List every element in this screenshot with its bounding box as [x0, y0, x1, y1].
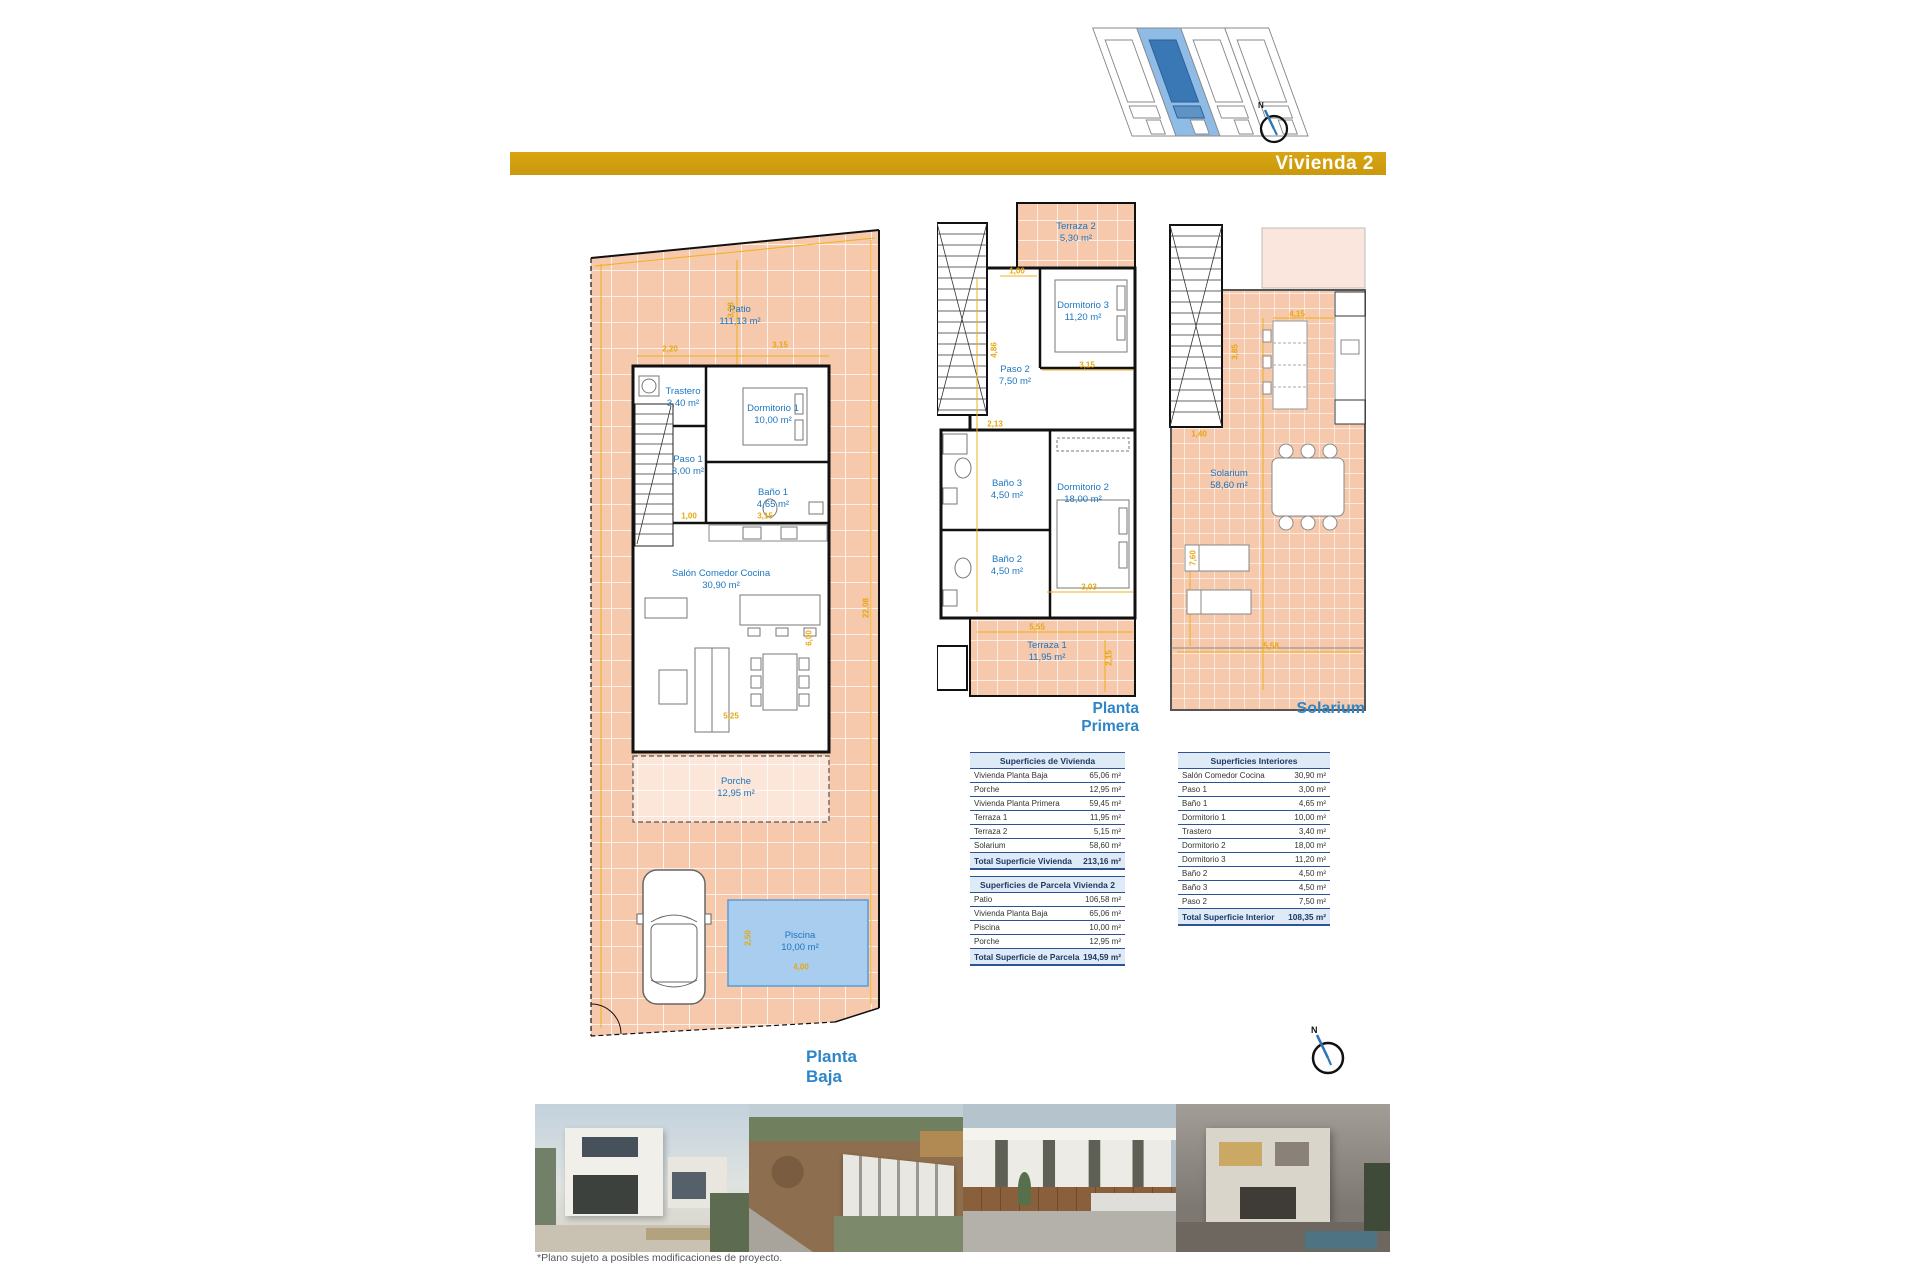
- row-label: Porche: [974, 937, 999, 946]
- compass-bottom-icon: N: [1300, 1022, 1362, 1084]
- room-label-dormitorio-3: Dormitorio 311,20 m²: [1057, 300, 1109, 324]
- dim-label: 2,15: [1105, 650, 1114, 666]
- row-label: Paso 2: [1182, 897, 1207, 906]
- row-label: Trastero: [1182, 827, 1212, 836]
- table-row: Terraza 111,95 m²: [970, 811, 1125, 825]
- row-value: 4,65 m²: [1299, 799, 1326, 808]
- page-title: Vivienda 2: [1275, 153, 1386, 175]
- table-header: Superficies de Parcela Vivienda 2: [970, 876, 1125, 893]
- row-label: Paso 1: [1182, 785, 1207, 794]
- row-label: Terraza 1: [974, 813, 1007, 822]
- render-photos-strip: [535, 1104, 1390, 1252]
- total-value: 213,16 m²: [1083, 856, 1121, 866]
- plan-planta-baja: Patio111,13 m² Trastero3,40 m² Dormitori…: [585, 218, 885, 1070]
- room-label-bano-3: Baño 34,50 m²: [991, 478, 1023, 502]
- row-value: 10,00 m²: [1294, 813, 1326, 822]
- dim-label: 3,03: [1081, 583, 1097, 592]
- table-row: Dormitorio 311,20 m²: [1178, 853, 1330, 867]
- plan-title-planta-baja: Planta Baja: [806, 1047, 885, 1087]
- row-value: 3,00 m²: [1299, 785, 1326, 794]
- room-label-bano-1: Baño 14,65 m²: [757, 487, 789, 511]
- row-value: 11,20 m²: [1295, 855, 1326, 864]
- page: N Vivienda 2: [0, 0, 1920, 1280]
- table-row: Terraza 25,15 m²: [970, 825, 1125, 839]
- table-row: Trastero3,40 m²: [1178, 825, 1330, 839]
- table-row: Salón Comedor Cocina30,90 m²: [1178, 769, 1330, 783]
- total-label: Total Superficie Vivienda: [974, 856, 1072, 866]
- table-row: Baño 14,65 m²: [1178, 797, 1330, 811]
- row-label: Baño 3: [1182, 883, 1207, 892]
- table-header: Superficies de Vivienda: [970, 752, 1125, 769]
- table-row: Porche12,95 m²: [970, 783, 1125, 797]
- table-total-row: Total Superficie de Parcela194,59 m²: [970, 949, 1125, 966]
- table-row: Solarium58,60 m²: [970, 839, 1125, 853]
- dim-label: 1,00: [1009, 267, 1025, 276]
- row-value: 106,58 m²: [1085, 895, 1121, 904]
- dim-label: 5,25: [723, 712, 739, 721]
- row-label: Vivienda Planta Primera: [974, 799, 1060, 808]
- dim-label: 3,15: [1079, 361, 1095, 370]
- plan-title-planta-primera: Planta Primera: [1039, 700, 1139, 736]
- dim-label: 5,58: [1263, 642, 1279, 651]
- table-row: Dormitorio 110,00 m²: [1178, 811, 1330, 825]
- render-photo-villa-pool: [535, 1104, 749, 1252]
- row-value: 7,50 m²: [1299, 897, 1326, 906]
- dim-label: 4,86: [990, 342, 999, 358]
- dim-label: 6,00: [805, 630, 814, 646]
- room-label-terraza-1: Terraza 111,95 m²: [1027, 640, 1067, 664]
- north-label: N: [1258, 101, 1264, 110]
- table-superficies-interiores: Superficies InterioresSalón Comedor Coci…: [1178, 752, 1330, 926]
- render-photo-aerial: [749, 1104, 963, 1252]
- dim-label: 1,00: [681, 512, 697, 521]
- row-value: 65,06 m²: [1089, 909, 1121, 918]
- table-superficies-vivienda: Superficies de ViviendaVivienda Planta B…: [970, 752, 1125, 870]
- room-label-trastero: Trastero3,40 m²: [665, 386, 700, 410]
- row-value: 12,95 m²: [1089, 785, 1121, 794]
- table-row: Vivienda Planta Baja65,06 m²: [970, 769, 1125, 783]
- room-label-paso-1: Paso 13,00 m²: [672, 454, 704, 478]
- row-label: Patio: [974, 895, 992, 904]
- room-label-piscina: Piscina10,00 m²: [781, 930, 819, 954]
- table-header: Superficies Interiores: [1178, 752, 1330, 769]
- north-label: N: [1311, 1025, 1318, 1035]
- row-value: 59,45 m²: [1089, 799, 1121, 808]
- row-label: Solarium: [974, 841, 1006, 850]
- dim-label: 22,08: [862, 598, 871, 618]
- table-superficies-parcela: Superficies de Parcela Vivienda 2Patio10…: [970, 876, 1125, 966]
- title-bar: Vivienda 2: [510, 152, 1386, 175]
- row-value: 18,00 m²: [1294, 841, 1326, 850]
- table-row: Vivienda Planta Baja65,06 m²: [970, 907, 1125, 921]
- dim-label: 3,28: [727, 302, 736, 318]
- row-value: 11,95 m²: [1090, 813, 1121, 822]
- plan-planta-primera: Terraza 25,30 m² Dormitorio 311,20 m² Pa…: [937, 200, 1142, 720]
- total-value: 194,59 m²: [1083, 952, 1121, 962]
- table-row: Baño 34,50 m²: [1178, 881, 1330, 895]
- row-label: Salón Comedor Cocina: [1182, 771, 1265, 780]
- room-label-solarium: Solarium58,60 m²: [1210, 468, 1248, 492]
- room-label-paso-2: Paso 27,50 m²: [999, 364, 1031, 388]
- row-label: Piscina: [974, 923, 1000, 932]
- row-label: Dormitorio 1: [1182, 813, 1226, 822]
- footnote: *Plano sujeto a posibles modificaciones …: [537, 1252, 782, 1264]
- dim-label: 3,15: [772, 341, 788, 350]
- row-label: Vivienda Planta Baja: [974, 771, 1048, 780]
- total-value: 108,35 m²: [1288, 912, 1326, 922]
- row-value: 3,40 m²: [1299, 827, 1326, 836]
- plan-title-solarium: Solarium: [1295, 700, 1365, 718]
- row-label: Dormitorio 2: [1182, 841, 1226, 850]
- room-label-bano-2: Baño 24,50 m²: [991, 554, 1023, 578]
- row-value: 12,95 m²: [1089, 937, 1121, 946]
- dim-label: 2,13: [987, 420, 1003, 429]
- row-value: 58,60 m²: [1089, 841, 1121, 850]
- room-label-dormitorio-1: Dormitorio 110,00 m²: [747, 403, 799, 427]
- row-value: 65,06 m²: [1089, 771, 1121, 780]
- row-value: 30,90 m²: [1294, 771, 1326, 780]
- dim-label: 4,00: [793, 963, 809, 972]
- total-label: Total Superficie Interior: [1182, 912, 1275, 922]
- table-total-row: Total Superficie Vivienda213,16 m²: [970, 853, 1125, 870]
- plan-solarium: Solarium58,60 m² 1,40 4,15 3,85 7,60 5,5…: [1169, 218, 1369, 718]
- table-row: Vivienda Planta Primera59,45 m²: [970, 797, 1125, 811]
- total-label: Total Superficie de Parcela: [974, 952, 1079, 962]
- row-value: 10,00 m²: [1089, 923, 1121, 932]
- render-photo-street-row: [963, 1104, 1177, 1252]
- dim-label: 4,15: [1289, 310, 1305, 319]
- row-label: Vivienda Planta Baja: [974, 909, 1048, 918]
- dim-label: 1,40: [1191, 430, 1207, 439]
- dim-label: 3,85: [1231, 344, 1240, 360]
- row-value: 4,50 m²: [1299, 883, 1326, 892]
- dim-label: 2,50: [744, 930, 753, 946]
- table-row: Paso 13,00 m²: [1178, 783, 1330, 797]
- table-row: Baño 24,50 m²: [1178, 867, 1330, 881]
- row-label: Baño 1: [1182, 799, 1207, 808]
- dim-label: 7,60: [1189, 550, 1198, 566]
- planta-baja-drawing: [585, 218, 885, 1070]
- dim-label: 2,20: [662, 345, 678, 354]
- table-row: Piscina10,00 m²: [970, 921, 1125, 935]
- row-label: Dormitorio 3: [1182, 855, 1226, 864]
- compass-top-icon: N: [1248, 96, 1304, 152]
- room-label-terraza-2: Terraza 25,30 m²: [1056, 221, 1096, 245]
- table-row: Porche12,95 m²: [970, 935, 1125, 949]
- room-label-salon: Salón Comedor Cocina30,90 m²: [672, 568, 770, 592]
- dim-label: 3,15: [757, 512, 773, 521]
- row-label: Baño 2: [1182, 869, 1207, 878]
- render-photo-dusk-villa: [1176, 1104, 1390, 1252]
- row-value: 4,50 m²: [1299, 869, 1326, 878]
- row-value: 5,15 m²: [1094, 827, 1121, 836]
- table-total-row: Total Superficie Interior108,35 m²: [1178, 909, 1330, 926]
- dim-label: 5,55: [1029, 623, 1045, 632]
- row-label: Terraza 2: [974, 827, 1007, 836]
- room-label-dormitorio-2: Dormitorio 218,00 m²: [1057, 482, 1109, 506]
- table-row: Paso 27,50 m²: [1178, 895, 1330, 909]
- row-label: Porche: [974, 785, 999, 794]
- table-row: Dormitorio 218,00 m²: [1178, 839, 1330, 853]
- table-row: Patio106,58 m²: [970, 893, 1125, 907]
- room-label-porche: Porche12,95 m²: [717, 776, 755, 800]
